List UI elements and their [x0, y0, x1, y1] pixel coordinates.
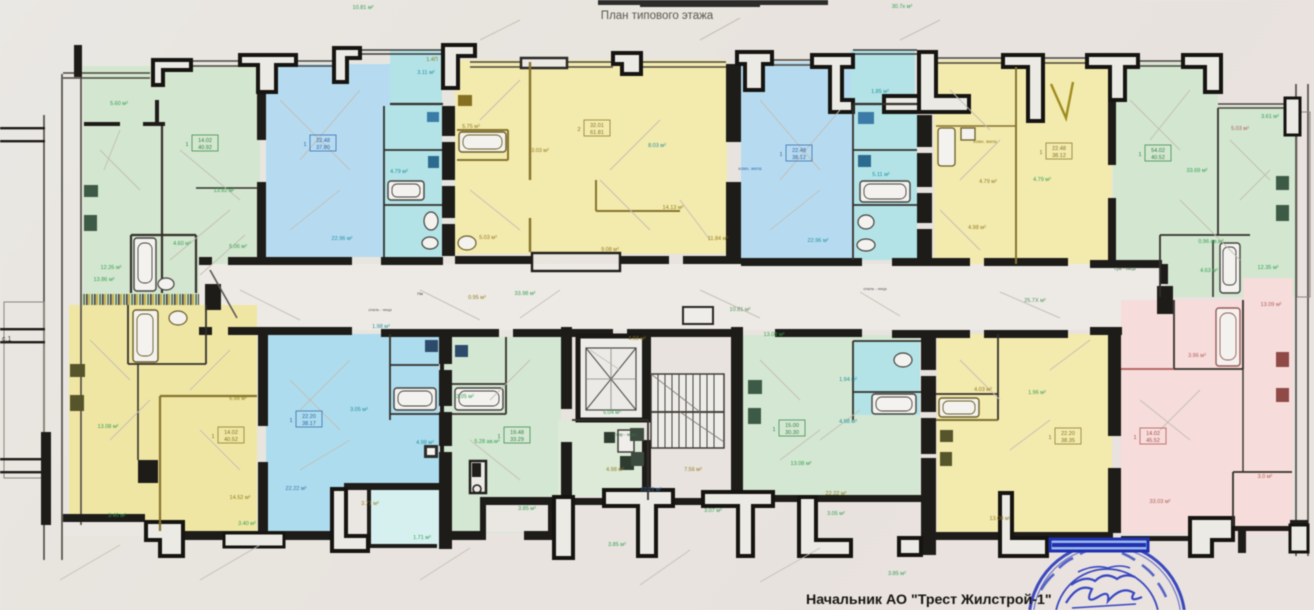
- svg-text:7.56 м²: 7.56 м²: [684, 467, 702, 473]
- svg-text:14.13 м²: 14.13 м²: [663, 205, 684, 211]
- svg-text:10.81 м²: 10.81 м²: [353, 5, 374, 11]
- svg-text:с.1: с.1: [2, 336, 11, 343]
- svg-text:5.06 м²: 5.06 м²: [229, 244, 247, 250]
- svg-text:0.96 ав.м²: 0.96 ав.м²: [1198, 239, 1224, 245]
- svg-text:4.63 м²: 4.63 м²: [1200, 268, 1218, 274]
- svg-text:40.52: 40.52: [1151, 155, 1165, 161]
- svg-text:4.98 м²: 4.98 м²: [606, 467, 624, 473]
- svg-text:13.08 м²: 13.08 м²: [791, 461, 812, 467]
- svg-text:5.04 м²: 5.04 м²: [603, 410, 621, 416]
- svg-text:3.40 м²: 3.40 м²: [108, 513, 126, 519]
- svg-text:12.26 м²: 12.26 м²: [101, 265, 122, 271]
- svg-text:3.85 м²: 3.85 м²: [608, 542, 626, 548]
- svg-text:сум - ница: сум - ница: [1114, 266, 1136, 271]
- svg-text:4.79 м²: 4.79 м²: [979, 179, 997, 185]
- svg-text:25.7X м²: 25.7X м²: [1024, 298, 1046, 304]
- svg-text:1: 1: [1048, 435, 1051, 441]
- svg-text:38.17: 38.17: [302, 421, 316, 427]
- svg-text:22.20: 22.20: [1061, 431, 1075, 437]
- svg-text:30.7x м²: 30.7x м²: [892, 4, 913, 10]
- svg-text:3.96 м²: 3.96 м²: [1188, 353, 1206, 359]
- svg-text:14.02: 14.02: [1146, 431, 1160, 437]
- svg-text:4.03 м²: 4.03 м²: [628, 336, 646, 342]
- svg-text:54.02: 54.02: [1151, 148, 1165, 154]
- svg-text:19.48: 19.48: [510, 430, 524, 436]
- svg-text:13.86 м²: 13.86 м²: [94, 277, 115, 283]
- svg-text:5.28 ав.м²: 5.28 ав.м²: [474, 439, 500, 445]
- svg-text:61.81: 61.81: [590, 130, 604, 136]
- svg-text:3.03 м²: 3.03 м²: [531, 148, 549, 154]
- svg-text:22.48: 22.48: [316, 138, 330, 144]
- svg-text:10.81 м²: 10.81 м²: [730, 307, 751, 313]
- svg-text:1.96 м²: 1.96 м²: [1028, 390, 1046, 396]
- svg-text:План типового этажа: План типового этажа: [601, 10, 714, 22]
- svg-text:22.96 м²: 22.96 м²: [332, 236, 353, 242]
- svg-text:1: 1: [1138, 152, 1141, 158]
- svg-text:14.02: 14.02: [198, 138, 212, 144]
- svg-text:2: 2: [577, 127, 580, 133]
- svg-text:5.03 м²: 5.03 м²: [1231, 126, 1249, 132]
- svg-text:1: 1: [289, 418, 292, 424]
- svg-text:40.52: 40.52: [224, 437, 238, 443]
- svg-text:13.08 м²: 13.08 м²: [98, 424, 119, 430]
- svg-text:15.00: 15.00: [785, 423, 799, 429]
- svg-text:1.85 м²: 1.85 м²: [871, 89, 889, 95]
- svg-text:3.71 м²: 3.71 м²: [361, 501, 379, 507]
- svg-text:45.52: 45.52: [1146, 438, 1160, 444]
- svg-text:комн. жила: комн. жила: [973, 139, 997, 144]
- svg-text:спаль - ница: спаль - ница: [368, 307, 392, 312]
- svg-text:22.96 м²: 22.96 м²: [808, 238, 829, 244]
- svg-text:Начальник АО "Трест Жилстрой-1: Начальник АО "Трест Жилстрой-1": [806, 592, 1052, 608]
- svg-text:стир - маш: стир - маш: [614, 432, 637, 437]
- svg-text:22.22 м²: 22.22 м²: [286, 486, 307, 492]
- svg-text:3.05 м²: 3.05 м²: [456, 394, 474, 400]
- svg-text:12.35 м²: 12.35 м²: [1258, 265, 1279, 271]
- svg-text:3.11 м²: 3.11 м²: [417, 70, 435, 76]
- svg-text:3.40 м²: 3.40 м²: [238, 521, 256, 527]
- svg-text:38.35: 38.35: [1061, 438, 1075, 444]
- svg-text:13.82 м²: 13.82 м²: [214, 188, 235, 194]
- svg-text:4.79 м²: 4.79 м²: [1033, 177, 1051, 183]
- svg-text:40.92: 40.92: [198, 145, 212, 151]
- svg-text:1.94 м²: 1.94 м²: [839, 377, 857, 383]
- svg-text:3.85 м²: 3.85 м²: [518, 506, 536, 512]
- svg-text:1: 1: [211, 434, 214, 440]
- svg-text:33.29: 33.29: [510, 437, 524, 443]
- svg-text:1: 1: [779, 152, 782, 158]
- svg-text:8.03 м²: 8.03 м²: [648, 143, 666, 149]
- svg-text:38.12: 38.12: [792, 155, 806, 161]
- svg-text:22.48: 22.48: [792, 148, 806, 154]
- svg-text:1.4П: 1.4П: [426, 57, 438, 63]
- svg-text:4.98 м²: 4.98 м²: [839, 419, 857, 425]
- svg-text:14.02: 14.02: [224, 430, 238, 436]
- svg-text:комн. жила: комн. жила: [738, 166, 762, 171]
- svg-text:13.09 м²: 13.09 м²: [1261, 302, 1282, 308]
- svg-text:32.01: 32.01: [590, 123, 604, 129]
- svg-text:1: 1: [1133, 435, 1136, 441]
- svg-text:5.03 м²: 5.03 м²: [479, 235, 497, 241]
- svg-text:спаль - ница: спаль - ница: [863, 286, 887, 291]
- svg-text:30.30: 30.30: [785, 430, 799, 436]
- svg-text:3.07 м²: 3.07 м²: [704, 508, 722, 514]
- svg-text:22.48: 22.48: [1052, 146, 1066, 152]
- svg-text:5.75 м²: 5.75 м²: [462, 124, 480, 130]
- svg-text:33.98 м²: 33.98 м²: [515, 291, 536, 297]
- svg-text:3.61 м²: 3.61 м²: [1261, 114, 1279, 120]
- svg-text:1.71 м²: 1.71 м²: [413, 535, 431, 541]
- svg-text:5.11 м²: 5.11 м²: [872, 172, 890, 178]
- svg-text:11.84 м²: 11.84 м²: [708, 236, 729, 242]
- svg-text:4.60 м²: 4.60 м²: [173, 241, 191, 247]
- svg-text:5.98 м²: 5.98 м²: [229, 396, 247, 402]
- svg-text:1.98 м²: 1.98 м²: [372, 324, 390, 330]
- svg-text:9.08 м²: 9.08 м²: [601, 247, 619, 253]
- svg-text:4.98 м²: 4.98 м²: [968, 225, 986, 231]
- svg-text:3.85 м²: 3.85 м²: [888, 571, 906, 577]
- svg-text:13.08 м²: 13.08 м²: [764, 332, 785, 338]
- svg-text:38.12: 38.12: [1052, 153, 1066, 159]
- svg-text:Пм: Пм: [417, 291, 423, 296]
- svg-text:22.22 м²: 22.22 м²: [641, 487, 662, 493]
- svg-text:5.60 м²: 5.60 м²: [110, 101, 128, 107]
- svg-text:13.08 м²: 13.08 м²: [990, 516, 1011, 522]
- svg-text:1: 1: [185, 142, 188, 148]
- svg-text:14.52 м²: 14.52 м²: [230, 495, 251, 501]
- svg-text:3.05 м²: 3.05 м²: [350, 407, 368, 413]
- svg-text:4.03 м²: 4.03 м²: [974, 387, 992, 393]
- svg-text:0.95 м²: 0.95 м²: [468, 295, 486, 301]
- svg-text:4.98 м²: 4.98 м²: [416, 440, 434, 446]
- svg-text:3.0 м²: 3.0 м²: [1258, 474, 1273, 480]
- svg-text:33.03 м²: 33.03 м²: [1150, 499, 1171, 505]
- svg-text:1: 1: [772, 427, 775, 433]
- svg-text:3.05 м²: 3.05 м²: [827, 511, 845, 517]
- svg-text:22.22 м²: 22.22 м²: [826, 491, 847, 497]
- svg-text:33.69 м²: 33.69 м²: [1187, 168, 1208, 174]
- svg-text:4.79 м²: 4.79 м²: [390, 169, 408, 175]
- svg-text:1: 1: [1039, 150, 1042, 156]
- svg-text:1: 1: [303, 142, 306, 148]
- svg-text:22.20: 22.20: [302, 414, 316, 420]
- svg-text:37.80: 37.80: [316, 145, 330, 151]
